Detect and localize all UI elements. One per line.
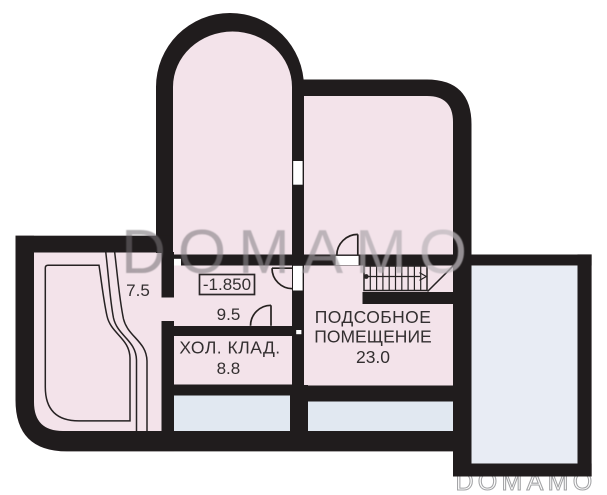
svg-text:8.8: 8.8	[217, 359, 241, 378]
svg-text:23.0: 23.0	[356, 347, 390, 367]
svg-text:ПОМЕЩЕНИЕ: ПОМЕЩЕНИЕ	[314, 327, 431, 347]
svg-text:9.5: 9.5	[217, 305, 241, 324]
svg-text:DOMAMO: DOMAMO	[121, 218, 479, 287]
svg-text:ПОДСОБНОЕ: ПОДСОБНОЕ	[315, 307, 432, 327]
svg-text:ХОЛ. КЛАД.: ХОЛ. КЛАД.	[179, 338, 280, 358]
